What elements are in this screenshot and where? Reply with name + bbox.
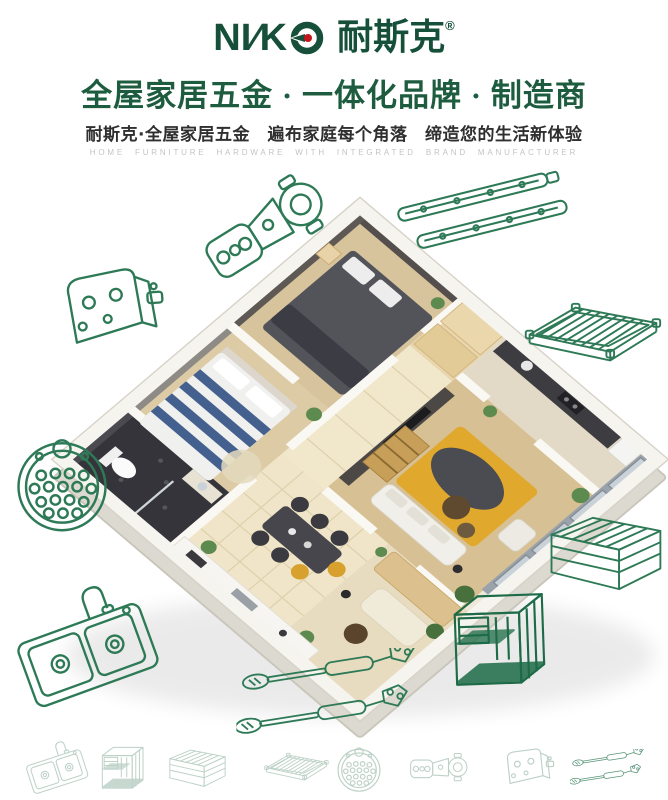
round-drain-basket-icon (10, 430, 114, 534)
mini-wire-shelf-icon (262, 742, 330, 794)
registered-mark: ® (445, 18, 455, 33)
mini-cabinet-hinge-icon (408, 742, 474, 794)
poster: NI ∕ K 耐斯克 ® 全屋家居五金 · 一体化品牌 · 制造商 耐斯克·全屋… (0, 0, 668, 800)
logo-slash-s: ∕ (252, 19, 258, 57)
brand-logo: NI ∕ K 耐斯克 ® (0, 12, 668, 64)
wire-shelf-icon (520, 294, 664, 376)
mini-gas-lift-struts-icon (570, 742, 650, 794)
logo-latin-prefix: NI (213, 19, 251, 57)
wire-organizer-rack-icon (438, 582, 558, 698)
wire-basket-icon (544, 508, 666, 598)
logo-o-target-icon (290, 21, 324, 55)
mini-wire-organizer-rack-icon (94, 742, 150, 794)
subheadline: 耐斯克·全屋家居五金 遍布家庭每个角落 缔造您的生活新体验 (0, 120, 668, 145)
logo-latin-k: K (260, 19, 287, 57)
mini-hinge-mounting-plate-icon (498, 742, 556, 794)
mini-kitchen-sink-icon (18, 733, 95, 800)
tagline-english: HOME FURNITURE HARDWARE WITH INTEGRATED … (0, 148, 668, 157)
headline: 全屋家居五金 · 一体化品牌 · 制造商 (0, 70, 668, 115)
mini-wire-basket-icon (166, 742, 228, 794)
gas-lift-struts-icon (232, 648, 434, 740)
logo-chinese: 耐斯克 (337, 20, 445, 56)
mini-round-drain-basket-icon (334, 742, 384, 794)
hinge-mounting-plate-icon (47, 256, 172, 362)
